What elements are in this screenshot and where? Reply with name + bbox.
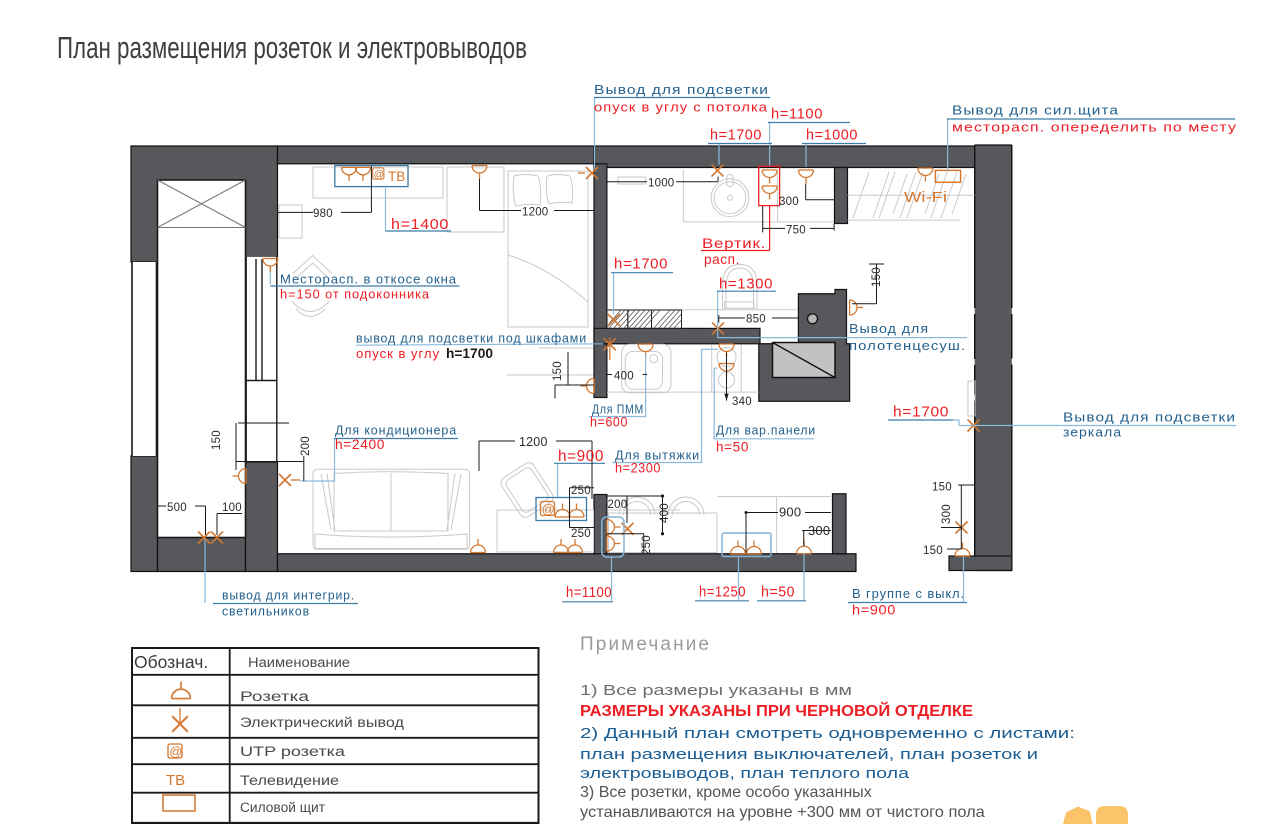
svg-text:h=1700: h=1700 xyxy=(893,404,949,421)
svg-text:300: 300 xyxy=(779,196,799,208)
svg-text:Для кондиционера: Для кондиционера xyxy=(335,423,457,438)
svg-text:150: 150 xyxy=(871,267,883,287)
svg-text:250: 250 xyxy=(571,528,591,540)
svg-text:зеркала: зеркала xyxy=(1063,425,1122,440)
svg-text:UTP розетка: UTP розетка xyxy=(240,744,346,759)
svg-text:опуск в углу: опуск в углу xyxy=(356,346,440,361)
svg-text:устанавливаются на уровне +300: устанавливаются на уровне +300 мм от чис… xyxy=(580,804,985,822)
svg-text:h=1100: h=1100 xyxy=(771,106,823,123)
svg-text:Месторасп. в откосе окна: Месторасп. в откосе окна xyxy=(280,272,457,287)
svg-text:150: 150 xyxy=(923,545,943,557)
svg-text:150: 150 xyxy=(552,361,564,381)
svg-text:Обознач.: Обознач. xyxy=(134,652,208,672)
svg-text:h=50: h=50 xyxy=(716,440,749,455)
svg-text:150: 150 xyxy=(932,482,952,494)
svg-text:Для вар.панели: Для вар.панели xyxy=(716,423,816,438)
svg-text:месторасп. опеределить по мест: месторасп. опеределить по месту xyxy=(952,120,1237,135)
svg-text:h=1700: h=1700 xyxy=(710,127,762,144)
svg-text:h=1300: h=1300 xyxy=(719,276,773,293)
svg-text:Телевидение: Телевидение xyxy=(240,773,339,788)
svg-text:Примечание: Примечание xyxy=(580,634,709,655)
svg-text:3) Все розетки, кроме особо ук: 3) Все розетки, кроме особо указанных xyxy=(580,784,873,802)
svg-text:250: 250 xyxy=(641,535,653,555)
svg-text:h=600: h=600 xyxy=(590,415,628,430)
svg-text:h=2400: h=2400 xyxy=(335,437,385,452)
svg-text:h=2300: h=2300 xyxy=(615,461,661,476)
svg-text:1200: 1200 xyxy=(522,207,548,219)
svg-text:250: 250 xyxy=(571,485,591,497)
svg-text:вывод для подсветки под шкафам: вывод для подсветки под шкафами xyxy=(356,331,587,346)
svg-text:300: 300 xyxy=(941,504,953,524)
svg-text:Электрический вывод: Электрический вывод xyxy=(240,715,404,730)
svg-text:План размещения розеток и элек: План размещения розеток и электровыводов xyxy=(57,32,527,66)
svg-text:расп.: расп. xyxy=(704,251,740,267)
svg-text:750: 750 xyxy=(786,225,806,237)
svg-text:850: 850 xyxy=(746,314,766,326)
svg-text:h=900: h=900 xyxy=(558,448,604,465)
svg-text:h=1000: h=1000 xyxy=(806,127,858,144)
svg-text:2) Данный план смотреть одновр: 2) Данный план смотреть одновременно с л… xyxy=(580,725,1075,742)
svg-text:340: 340 xyxy=(732,396,752,408)
svg-text:500: 500 xyxy=(167,502,187,514)
svg-text:200: 200 xyxy=(608,499,628,511)
svg-text:электровыводов, план теплого п: электровыводов, план теплого пола xyxy=(580,765,910,782)
svg-text:РАЗМЕРЫ УКАЗАНЫ ПРИ ЧЕРНОВОЙ О: РАЗМЕРЫ УКАЗАНЫ ПРИ ЧЕРНОВОЙ ОТДЕЛКЕ xyxy=(580,702,973,720)
svg-text:h=50: h=50 xyxy=(761,584,795,601)
svg-text:план размещения выключателей,: план размещения выключателей, план розет… xyxy=(580,746,1038,763)
svg-text:Силовой щит: Силовой щит xyxy=(240,800,325,815)
svg-text:опуск в углу с потолка: опуск в углу с потолка xyxy=(594,100,768,115)
svg-text:100: 100 xyxy=(222,502,242,514)
svg-text:ТВ: ТВ xyxy=(166,772,185,789)
svg-text:150: 150 xyxy=(211,430,223,450)
svg-text:Вывод для: Вывод для xyxy=(849,321,929,336)
svg-text:В группе с выкл.: В группе с выкл. xyxy=(852,586,965,601)
svg-text:300: 300 xyxy=(808,523,830,538)
svg-text:900: 900 xyxy=(779,505,801,520)
svg-text:Розетка: Розетка xyxy=(240,689,310,704)
svg-text:Wi-Fi: Wi-Fi xyxy=(904,190,947,206)
svg-text:Наименование: Наименование xyxy=(248,655,350,670)
svg-text:полотенцесуш.: полотенцесуш. xyxy=(849,338,966,353)
svg-text:h=1250: h=1250 xyxy=(699,584,746,601)
svg-text:Вывод для подсветки: Вывод для подсветки xyxy=(1063,410,1236,425)
svg-text:h=150 от подоконника: h=150 от подоконника xyxy=(280,287,430,302)
svg-text:400: 400 xyxy=(659,503,671,523)
svg-text:вывод для интегрир.: вывод для интегрир. xyxy=(222,588,355,603)
svg-text:светильников: светильников xyxy=(222,604,310,619)
svg-text:h=1100: h=1100 xyxy=(566,584,612,601)
svg-text:400: 400 xyxy=(614,371,634,383)
svg-text:h=1700: h=1700 xyxy=(614,256,668,273)
svg-text:h=900: h=900 xyxy=(852,603,896,618)
svg-text:h=1700: h=1700 xyxy=(446,346,493,361)
svg-text:Вывод для подсветки: Вывод для подсветки xyxy=(594,82,769,97)
svg-text:1) Все размеры указаны в мм: 1) Все размеры указаны в мм xyxy=(580,682,852,699)
svg-text:Вывод для сил.щита: Вывод для сил.щита xyxy=(952,103,1119,118)
svg-text:h=1400: h=1400 xyxy=(391,216,449,233)
svg-text:980: 980 xyxy=(313,208,333,220)
svg-text:Вертик.: Вертик. xyxy=(702,235,766,251)
svg-text:1200: 1200 xyxy=(519,435,548,449)
svg-text:200: 200 xyxy=(300,436,312,456)
svg-text:1000: 1000 xyxy=(648,178,674,190)
svg-text:ТВ: ТВ xyxy=(388,169,405,184)
